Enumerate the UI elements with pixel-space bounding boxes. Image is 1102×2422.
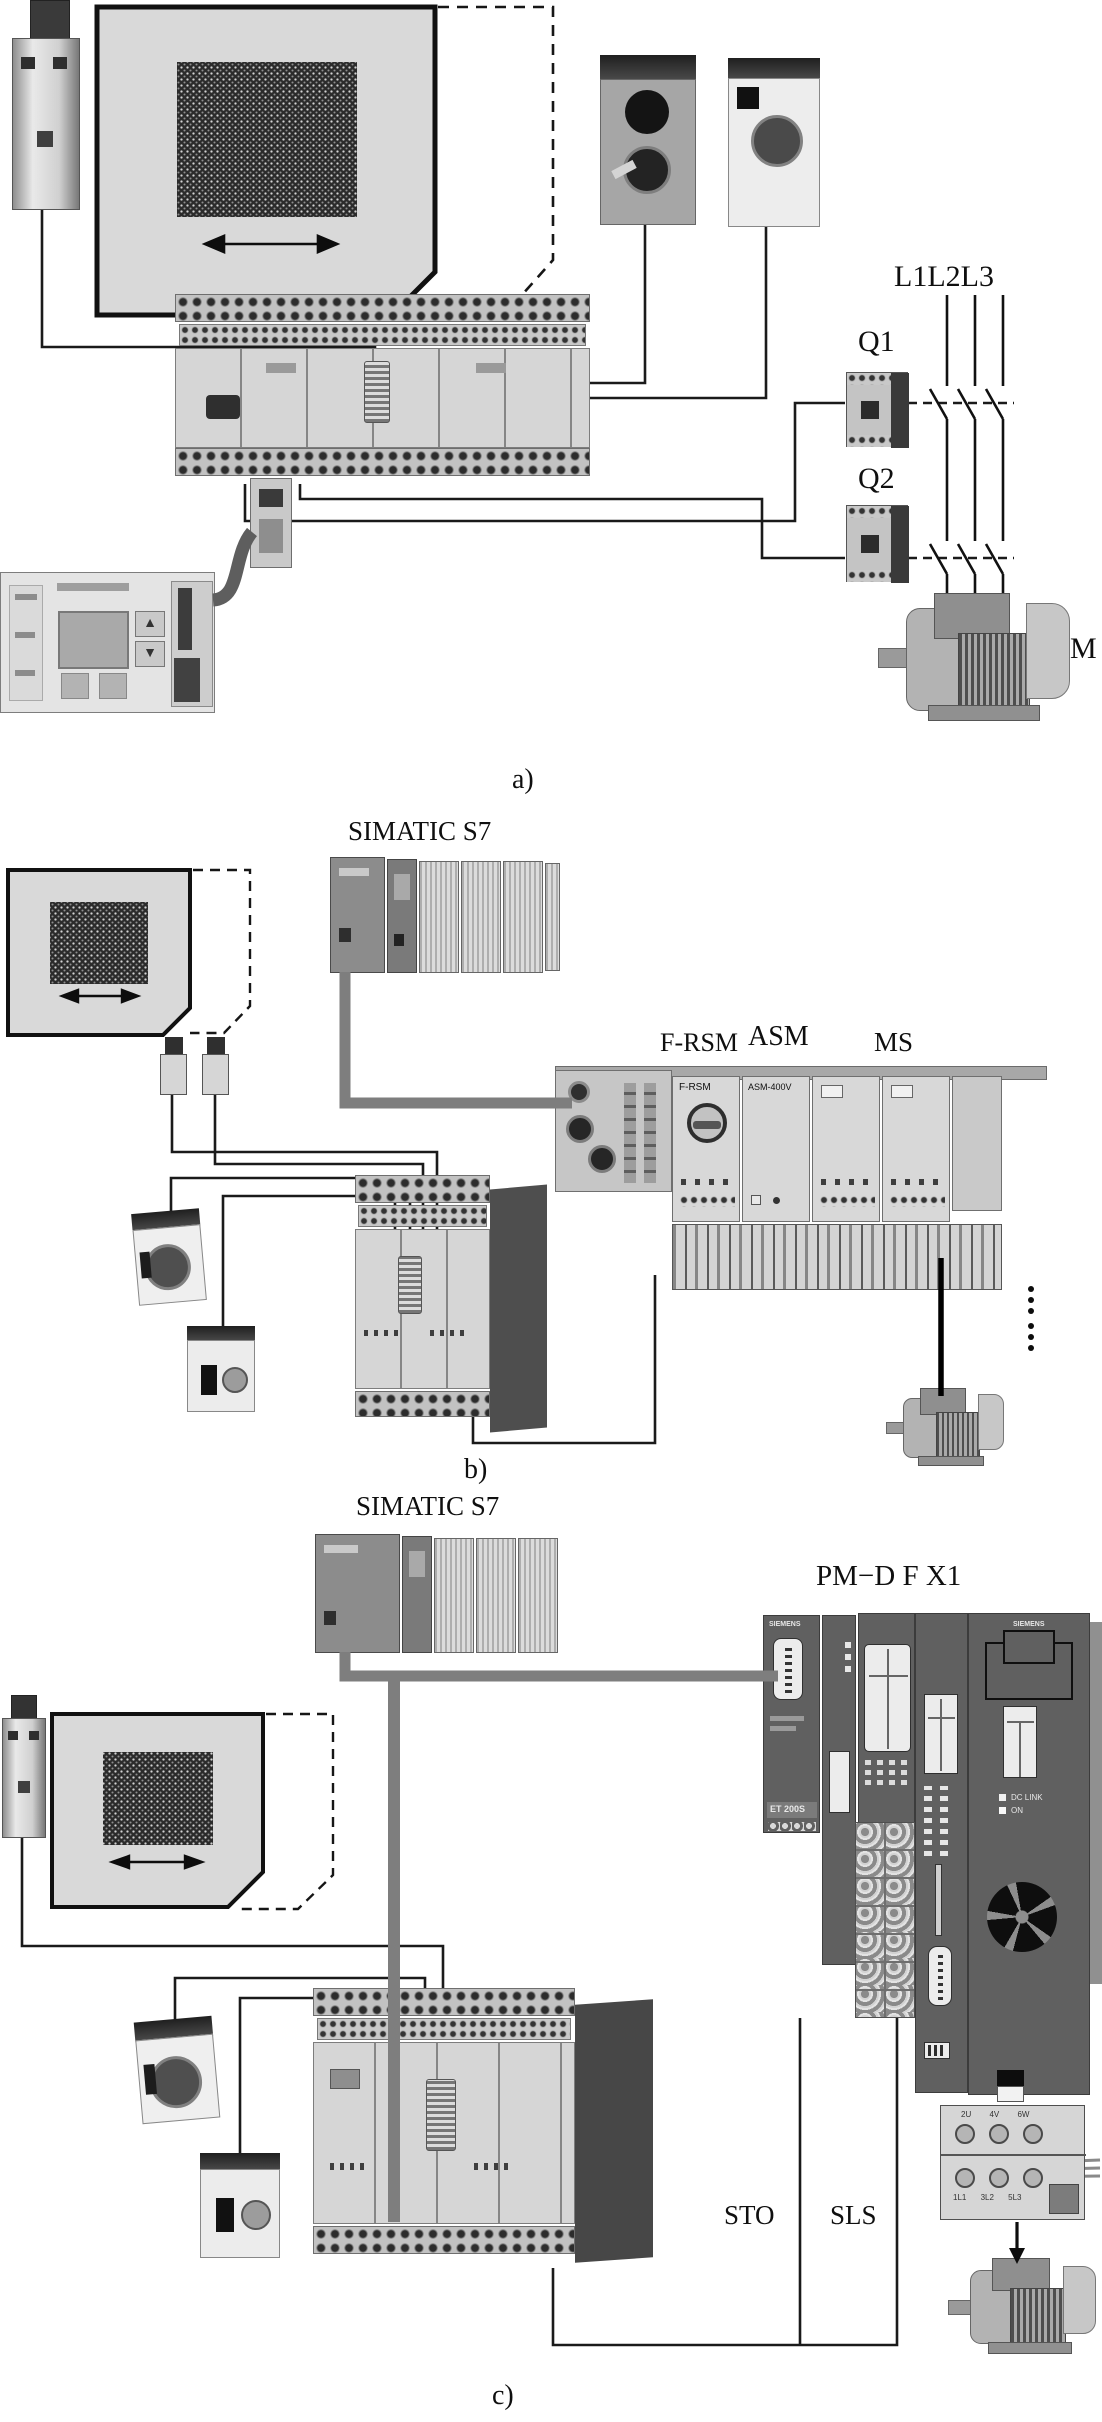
profibus-cable-b [345,972,572,1103]
continuation-dots-icon [1028,1286,1034,1351]
display-ribbon-cable [213,532,252,600]
bus-layer [0,0,1102,2422]
figure-canvas: ▲ ▼ [0,0,1102,2422]
motor-feed-arrow-icon [1009,2222,1025,2264]
profibus-cable-c [345,1652,778,1676]
